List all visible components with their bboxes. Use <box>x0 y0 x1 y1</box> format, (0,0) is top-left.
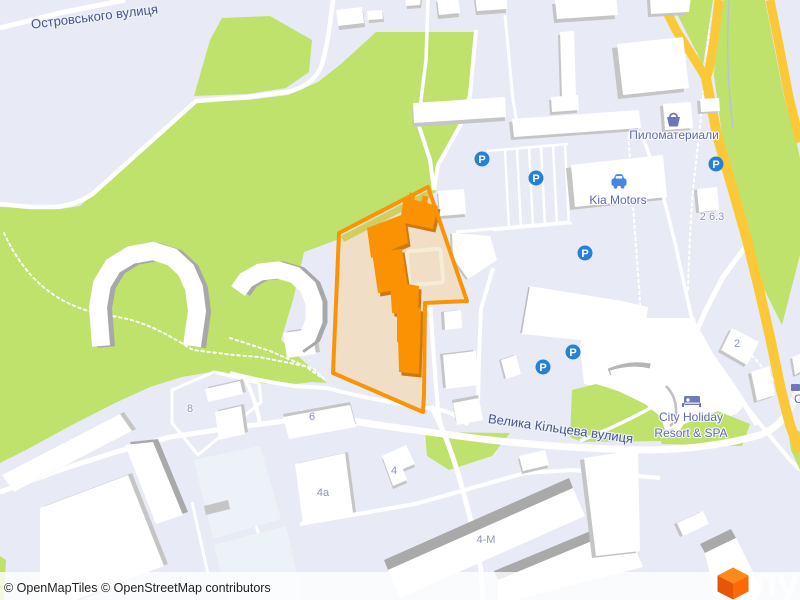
svg-text:2 6.3: 2 6.3 <box>700 211 724 223</box>
svg-text:City Holiday: City Holiday <box>659 410 723 424</box>
svg-text:лун: лун <box>752 561 800 600</box>
svg-text:P: P <box>581 248 588 260</box>
svg-text:Kia Motors: Kia Motors <box>589 193 646 207</box>
svg-text:P: P <box>532 173 539 185</box>
svg-text:6: 6 <box>309 411 315 423</box>
svg-text:P: P <box>569 347 576 359</box>
svg-text:4: 4 <box>391 465 397 477</box>
svg-text:4-M: 4-M <box>477 534 496 546</box>
svg-text:С: С <box>794 392 800 406</box>
svg-text:P: P <box>539 362 546 374</box>
svg-text:Пиломатериали: Пиломатериали <box>629 128 719 142</box>
svg-text:P: P <box>478 154 485 166</box>
svg-text:© OpenMapTiles © OpenStreetMap: © OpenMapTiles © OpenStreetMap contribut… <box>4 581 271 595</box>
svg-text:2: 2 <box>734 338 740 350</box>
svg-text:8: 8 <box>187 403 193 415</box>
svg-text:P: P <box>712 159 719 171</box>
svg-text:4a: 4a <box>317 487 330 499</box>
svg-text:Resort & SPA: Resort & SPA <box>654 426 727 440</box>
